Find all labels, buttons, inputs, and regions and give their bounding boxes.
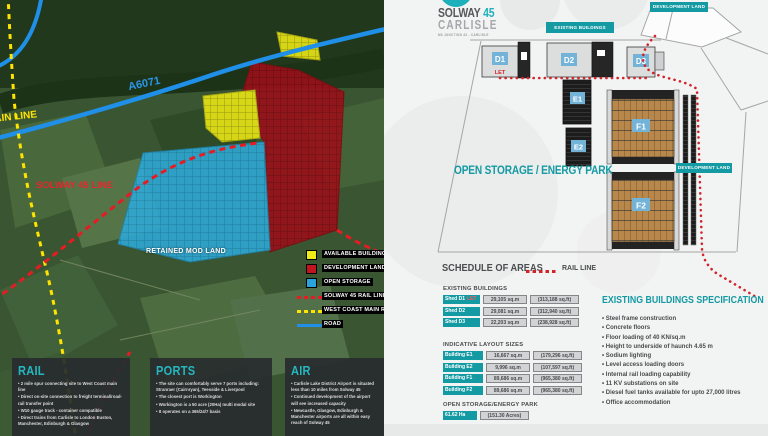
metric-area: 89,686 sq.m (486, 374, 530, 383)
building-d1: D1 LET (482, 46, 518, 77)
red-dashed-line-swatch (297, 296, 323, 299)
metric-area: 22,203 sq.m (483, 318, 527, 327)
imperial-area: (238,928 sq.ft) (530, 318, 579, 327)
row-label: Building E2 (443, 363, 483, 372)
row-label: Building F2 (443, 386, 483, 395)
rail-line-legend-label: RAIL LINE (562, 265, 596, 272)
retained-mod-land-label: RETAINED MOD LAND (146, 248, 226, 255)
imperial-area: (965,380 sq.ft) (533, 386, 582, 395)
legend-label: WEST COAST MAIN RAIL LINE (322, 306, 384, 314)
legend-item: WEST COAST MAIN RAIL LINE (296, 305, 384, 319)
bullet: Carlisle Lake District Airport is situat… (291, 381, 378, 393)
open-storage-table: 61.62 Ha (151.30 Acres) (443, 411, 583, 423)
row-label: Shed D2 (443, 307, 480, 316)
spec-bullet: Sodium lighting (602, 352, 762, 361)
legend-item: DEVELOPMENT LAND (296, 263, 384, 277)
bullet: The site can comfortably serve 7 ports i… (156, 381, 266, 393)
legend-label: ROAD (322, 320, 343, 328)
metric-area: 89,686 sq.m (486, 386, 530, 395)
bullet: 2 mile spur connecting site to West Coas… (18, 381, 124, 393)
spec-bullet: Steel frame construction (602, 315, 762, 324)
row-label: Building E1 (443, 351, 483, 360)
let-badge: LET (467, 296, 476, 302)
legend-item: SOLWAY 45 RAIL LINE (296, 291, 384, 305)
air-card-bullets: Carlisle Lake District Airport is situat… (291, 381, 378, 427)
map-legend: AVAILABLE BUILDINGS DEVELOPMENT LAND OPE… (296, 249, 384, 333)
metric-area: 9,996 sq.m (486, 363, 530, 372)
indicative-layout-heading: INDICATIVE LAYOUT SIZES (443, 342, 523, 348)
table-row: Building E2 9,996 sq.m (107,597 sq.ft) (443, 363, 583, 372)
building-f1-label: F1 (636, 122, 646, 132)
row-label: Building F1 (443, 374, 483, 383)
metric-area: 16,667 sq.m (486, 351, 530, 360)
ports-info-card: PORTS The site can comfortably serve 7 p… (150, 358, 272, 436)
row-label: Shed D1LET (443, 295, 480, 304)
ports-card-title: PORTS (156, 363, 250, 378)
rail-info-card: RAIL 2 mile spur connecting site to West… (12, 358, 130, 436)
air-info-card: AIR Carlisle Lake District Airport is si… (285, 358, 384, 436)
spec-bullet: Office accommodation (602, 399, 762, 408)
bullet: Workington is a 50 acre (20Ha) multi mod… (156, 402, 266, 408)
building-d2: D2 (547, 43, 592, 77)
existing-buildings-table: Shed D1LET 29,105 sq.m (313,188 sq.ft) S… (443, 295, 583, 330)
logo-city: CARLISLE (438, 18, 498, 32)
rail-loading-structure (518, 42, 530, 78)
bullet: The closest port is Workington (156, 394, 266, 400)
aerial-map: A6071 MAIN LINE SOLWAY 45 LINE RETAINED … (0, 0, 384, 436)
blue-square-swatch (306, 278, 317, 288)
spec-bullet: Concrete floors (602, 324, 762, 333)
legend-item: ROAD (296, 319, 384, 333)
logo-tagline: M6 JUNCTION 43 - CARLISLE (438, 33, 498, 37)
building-f2-label: F2 (636, 201, 646, 211)
bullet: Continued development of the airport wil… (291, 394, 378, 406)
row-label: 61.62 Ha (443, 411, 477, 420)
spec-bullet: Level access loading doors (602, 361, 762, 370)
bullet: It operates on a 365/24/7 basis (156, 409, 266, 415)
building-d1-let-label: LET (495, 70, 506, 76)
building-d3: D3 (627, 47, 664, 77)
site-plan-panel: D1 LET D2 D (384, 0, 768, 436)
table-row: Shed D3 22,203 sq.m (238,928 sq.ft) (443, 318, 583, 327)
bullet: Direct trains from Carlisle to London Eu… (18, 415, 124, 427)
spec-bullet: Floor loading of 40 KN/sq.m (602, 334, 762, 343)
air-card-title: AIR (291, 363, 365, 378)
solway-45-line-label: SOLWAY 45 LINE (36, 180, 113, 191)
blue-line-swatch (297, 324, 323, 327)
yellow-square-swatch (306, 250, 317, 260)
brand-logo: SOLWAY 45 CARLISLE M6 JUNCTION 43 - CARL… (438, 5, 498, 37)
open-storage-energy-park-label: OPEN STORAGE / ENERGY PARK (454, 165, 613, 177)
table-row: Building E1 16,667 sq.m (179,296 sq.ft) (443, 351, 583, 360)
development-land-tag-top: DEVELOPMENT LAND (650, 2, 708, 12)
legend-item: AVAILABLE BUILDINGS (296, 249, 384, 263)
metric-area: 29,105 sq.m (483, 295, 527, 304)
rail-card-bullets: 2 mile spur connecting site to West Coas… (18, 381, 124, 428)
existing-buildings-spec-title: EXISTING BUILDINGS SPECIFICATION (602, 295, 764, 306)
shed-name: Shed D1 (445, 296, 465, 302)
rail-line-legend-swatch (526, 270, 558, 273)
building-e2: E2 (566, 128, 591, 166)
building-f2: F2 (607, 172, 679, 250)
rail-card-title: RAIL (18, 363, 108, 378)
red-square-swatch (306, 264, 317, 274)
legend-label: SOLWAY 45 RAIL LINE (322, 292, 384, 300)
row-label: Shed D3 (443, 318, 480, 327)
building-e2-label: E2 (574, 143, 583, 152)
yellow-dashed-line-swatch (297, 310, 323, 313)
metric-area: 29,081 sq.m (483, 307, 527, 316)
legend-label: DEVELOPMENT LAND (322, 264, 384, 272)
imperial-area: (151.30 Acres) (480, 411, 529, 420)
existing-buildings-heading: EXISTING BUILDINGS (443, 286, 507, 292)
table-row: Shed D2 29,081 sq.m (312,940 sq.ft) (443, 307, 583, 316)
existing-buildings-tag: EXISTING BUILDINGS (546, 22, 614, 33)
building-d2-label: D2 (564, 56, 575, 65)
development-land-parcel (641, 8, 741, 47)
imperial-area: (107,597 sq.ft) (533, 363, 582, 372)
table-row: Shed D1LET 29,105 sq.m (313,188 sq.ft) (443, 295, 583, 304)
development-land-tag-mid: DEVELOPMENT LAND (676, 163, 732, 173)
spec-bullet: Height to underside of haunch 4.65 m (602, 343, 762, 352)
bullet: Newcastle, Glasgow, Edinburgh & Manchest… (291, 408, 378, 427)
spec-bullet: Diesel fuel tanks available for upto 27,… (602, 389, 762, 398)
imperial-area: (179,296 sq.ft) (533, 351, 582, 360)
imperial-area: (965,380 sq.ft) (533, 374, 582, 383)
legend-label: OPEN STORAGE (322, 278, 373, 286)
spec-bullet: 11 KV substations on site (602, 380, 762, 389)
bullet: Direct on-site connection to freight ter… (18, 394, 124, 406)
ports-card-bullets: The site can comfortably serve 7 ports i… (156, 381, 266, 415)
building-f1: F1 (607, 90, 679, 164)
spec-bullet: Internal rail loading capability (602, 371, 762, 380)
building-d1-label: D1 (495, 55, 506, 64)
table-row: Building F1 89,686 sq.m (965,380 sq.ft) (443, 374, 583, 383)
bullet: W10 gauge track - container compatible (18, 408, 124, 414)
zone-open-storage (118, 142, 270, 262)
imperial-area: (313,188 sq.ft) (530, 295, 579, 304)
brochure-page: A6071 MAIN LINE SOLWAY 45 LINE RETAINED … (0, 0, 768, 436)
open-storage-heading: OPEN STORAGE/ENERGY PARK (443, 402, 538, 408)
building-e1: E1 (563, 80, 591, 124)
building-e1-label: E1 (573, 95, 582, 104)
indicative-layout-table: Building E1 16,667 sq.m (179,296 sq.ft) … (443, 351, 583, 397)
table-row: Building F2 89,686 sq.m (965,380 sq.ft) (443, 386, 583, 395)
spec-bullet-list: Steel frame construction Concrete floors… (602, 315, 762, 408)
legend-label: AVAILABLE BUILDINGS (322, 250, 384, 258)
imperial-area: (312,940 sq.ft) (530, 307, 579, 316)
table-row: 61.62 Ha (151.30 Acres) (443, 411, 583, 420)
legend-item: OPEN STORAGE (296, 277, 384, 291)
rail-loading-structure (592, 42, 613, 77)
